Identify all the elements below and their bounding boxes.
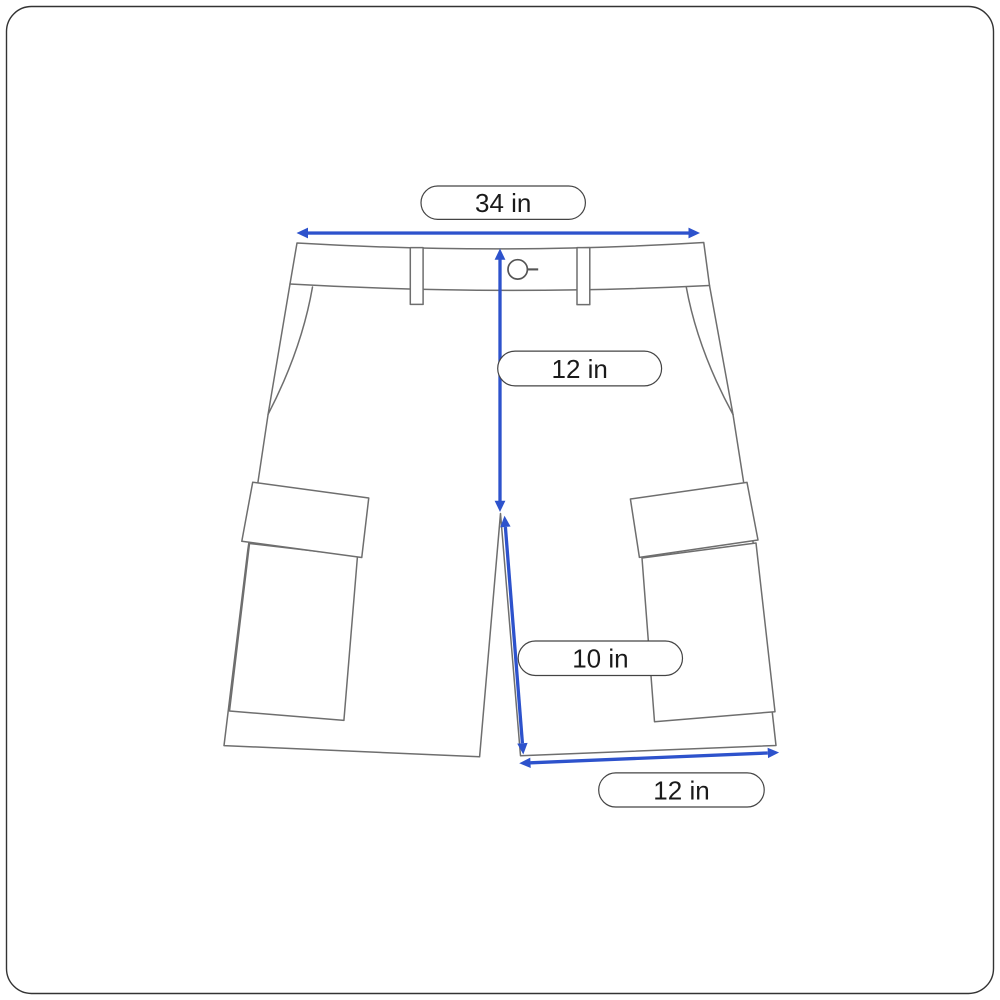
svg-text:10 in: 10 in bbox=[572, 644, 628, 674]
svg-text:12 in: 12 in bbox=[552, 354, 608, 384]
svg-text:34 in: 34 in bbox=[475, 188, 531, 218]
svg-text:12 in: 12 in bbox=[653, 775, 709, 805]
